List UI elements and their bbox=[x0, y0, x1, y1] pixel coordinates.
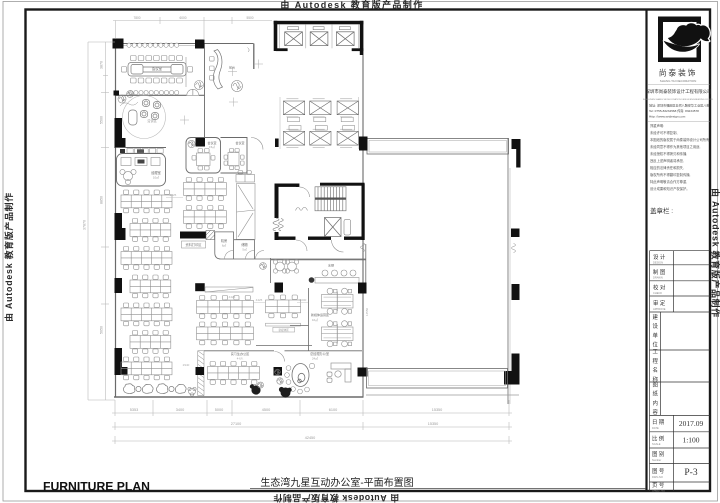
svg-text:校 对: 校 对 bbox=[653, 283, 666, 291]
svg-text:5000: 5000 bbox=[215, 408, 223, 412]
svg-text:5500: 5500 bbox=[100, 116, 104, 124]
svg-text:APPROVE: APPROVE bbox=[653, 307, 666, 311]
svg-text:本图纸的版权属于尚泰装饰设计公司所有,: 本图纸的版权属于尚泰装饰设计公司所有, bbox=[650, 137, 710, 142]
svg-text:7800: 7800 bbox=[133, 16, 140, 20]
svg-text:4425: 4425 bbox=[229, 295, 236, 299]
svg-text:尚泰装饰: 尚泰装饰 bbox=[659, 68, 697, 78]
svg-text:建: 建 bbox=[652, 313, 658, 321]
svg-text:版权所有不得翻印复制传播,: 版权所有不得翻印复制传播, bbox=[650, 172, 691, 177]
svg-text:SCALE: SCALE bbox=[652, 442, 661, 446]
svg-text:6㎡: 6㎡ bbox=[222, 244, 227, 248]
svg-text:由 Autodesk 教育版产品制作: 由 Autodesk 教育版产品制作 bbox=[710, 188, 720, 318]
svg-text:比 例: 比 例 bbox=[652, 434, 664, 442]
svg-text:未经授权不得拷贝和传播,: 未经授权不得拷贝和传播, bbox=[650, 151, 687, 156]
svg-text:相应的法律责任和损失,: 相应的法律责任和损失, bbox=[650, 165, 684, 170]
svg-text:5㎡: 5㎡ bbox=[242, 248, 247, 252]
svg-text:P-3: P-3 bbox=[684, 468, 697, 478]
svg-text:5000: 5000 bbox=[300, 298, 307, 302]
svg-text:新媒体运营区: 新媒体运营区 bbox=[311, 312, 329, 317]
svg-text:16㎡: 16㎡ bbox=[312, 318, 318, 322]
svg-text:纸: 纸 bbox=[652, 390, 658, 398]
svg-text:洽谈区: 洽谈区 bbox=[147, 118, 157, 123]
svg-text:水吧: 水吧 bbox=[328, 263, 334, 268]
svg-text:设: 设 bbox=[652, 322, 658, 330]
svg-text:容: 容 bbox=[652, 408, 658, 416]
svg-text:由 Autodesk 教育版产品制作: 由 Autodesk 教育版产品制作 bbox=[280, 0, 423, 10]
svg-text:3400: 3400 bbox=[176, 408, 184, 412]
svg-text:经理室: 经理室 bbox=[151, 170, 161, 175]
svg-text:5650: 5650 bbox=[100, 326, 104, 334]
svg-text:深圳市尚泰装饰设计工程有限公司: 深圳市尚泰装饰设计工程有限公司 bbox=[646, 88, 712, 95]
svg-text:5500: 5500 bbox=[246, 16, 253, 20]
svg-text:1:100: 1:100 bbox=[682, 435, 699, 444]
svg-text:图 号: 图 号 bbox=[652, 467, 665, 475]
svg-text:DRAWN: DRAWN bbox=[653, 276, 663, 280]
svg-text:DESIGN: DESIGN bbox=[653, 261, 663, 265]
svg-text:6000: 6000 bbox=[179, 16, 186, 20]
svg-text:3870: 3870 bbox=[100, 61, 104, 69]
svg-text:SHEET.NO: SHEET.NO bbox=[652, 489, 665, 493]
svg-text:资料打印区: 资料打印区 bbox=[186, 242, 203, 247]
svg-text:5353: 5353 bbox=[130, 408, 138, 412]
svg-text:37870: 37870 bbox=[83, 220, 87, 230]
svg-text:SHANG TAI DECORATION: SHANG TAI DECORATION bbox=[660, 79, 697, 83]
svg-text:14550: 14550 bbox=[365, 307, 369, 316]
svg-text:位: 位 bbox=[652, 341, 658, 349]
svg-text:2825: 2825 bbox=[170, 193, 177, 197]
svg-text:图: 图 bbox=[652, 380, 657, 388]
svg-text:审 定: 审 定 bbox=[653, 299, 666, 307]
svg-text:违反上述声明者将承担,: 违反上述声明者将承担, bbox=[650, 158, 684, 163]
svg-text:实习生办公区: 实习生办公区 bbox=[231, 351, 250, 356]
svg-text:DATE: DATE bbox=[652, 426, 659, 430]
svg-text:日 期: 日 期 bbox=[652, 419, 664, 426]
svg-text:10㎡: 10㎡ bbox=[153, 175, 159, 180]
svg-text:4500: 4500 bbox=[262, 408, 270, 412]
svg-text:盖章栏 :: 盖章栏 : bbox=[650, 206, 673, 215]
svg-text:郑重声明:: 郑重声明: bbox=[650, 123, 664, 128]
svg-text:设 计: 设 计 bbox=[653, 253, 666, 261]
svg-text:机房: 机房 bbox=[221, 238, 227, 243]
svg-text:15350: 15350 bbox=[432, 408, 443, 412]
svg-text:程: 程 bbox=[652, 357, 658, 365]
svg-text:会议室: 会议室 bbox=[152, 66, 163, 71]
svg-text:SHEN ZHEN SHANG TAI DECORATION: SHEN ZHEN SHANG TAI DECORATION DESIGN EN… bbox=[643, 98, 714, 101]
svg-text:由 Autodesk 教育版产品制作: 由 Autodesk 教育版产品制作 bbox=[3, 192, 14, 322]
svg-text:未经同意不得作为其他项目之用途,: 未经同意不得作为其他项目之用途, bbox=[650, 144, 700, 149]
svg-text:15350: 15350 bbox=[428, 422, 439, 426]
svg-text:24㎡: 24㎡ bbox=[312, 357, 318, 361]
svg-text:制 图: 制 图 bbox=[653, 268, 665, 276]
svg-text:内: 内 bbox=[652, 399, 657, 407]
svg-text:未经许可不得复制、: 未经许可不得复制、 bbox=[650, 130, 680, 135]
svg-text:15㎡: 15㎡ bbox=[209, 145, 215, 149]
svg-text:地址: 深圳市福田区泰然八路安华工业区八栋: 地址: 深圳市福田区泰然八路安华工业区八栋 bbox=[649, 103, 710, 108]
svg-text:4425: 4425 bbox=[256, 298, 263, 302]
svg-text:工: 工 bbox=[652, 349, 658, 356]
svg-text:生态湾九星互动办公室-平面布置图: 生态湾九星互动办公室-平面布置图 bbox=[260, 476, 413, 489]
svg-text:特此声明敬请合作方尊重,: 特此声明敬请合作方尊重, bbox=[650, 179, 687, 184]
svg-text:前台: 前台 bbox=[229, 65, 235, 70]
svg-text:Tel: 0755-83234568 传真: 8323: Tel: 0755-83234568 传真: 83234578 bbox=[649, 108, 699, 113]
svg-text:图 别: 图 别 bbox=[652, 450, 664, 458]
svg-text:名: 名 bbox=[652, 366, 657, 374]
svg-text:储物: 储物 bbox=[241, 242, 248, 247]
svg-text:4-6人: 4-6人 bbox=[237, 357, 244, 361]
svg-text:设计成果和知识产权保护。: 设计成果和知识产权保护。 bbox=[650, 186, 690, 191]
svg-text:8850: 8850 bbox=[100, 196, 104, 204]
svg-text:单: 单 bbox=[652, 331, 658, 339]
svg-text:CHECK: CHECK bbox=[653, 291, 662, 295]
svg-text:DWG.NO: DWG.NO bbox=[652, 475, 663, 479]
svg-text:总经理办公室: 总经理办公室 bbox=[310, 351, 329, 356]
svg-text:27100: 27100 bbox=[231, 422, 242, 426]
svg-text:Number: Number bbox=[652, 458, 661, 462]
svg-text:42450: 42450 bbox=[305, 436, 316, 440]
svg-text:2017.09: 2017.09 bbox=[679, 419, 704, 428]
svg-text:会议室: 会议室 bbox=[235, 140, 244, 145]
svg-text:由 Autodesk 教育版产品制作: 由 Autodesk 教育版产品制作 bbox=[273, 493, 399, 503]
svg-text:FURNITURE PLAN: FURNITURE PLAN bbox=[43, 480, 150, 494]
svg-text:页 号: 页 号 bbox=[652, 482, 665, 489]
svg-text:6100: 6100 bbox=[329, 408, 337, 412]
svg-text:2940: 2940 bbox=[183, 363, 190, 367]
svg-text:新媒体区: 新媒体区 bbox=[279, 328, 290, 332]
svg-text:Http: //www.sztdesign.com: Http: //www.sztdesign.com bbox=[649, 115, 686, 119]
